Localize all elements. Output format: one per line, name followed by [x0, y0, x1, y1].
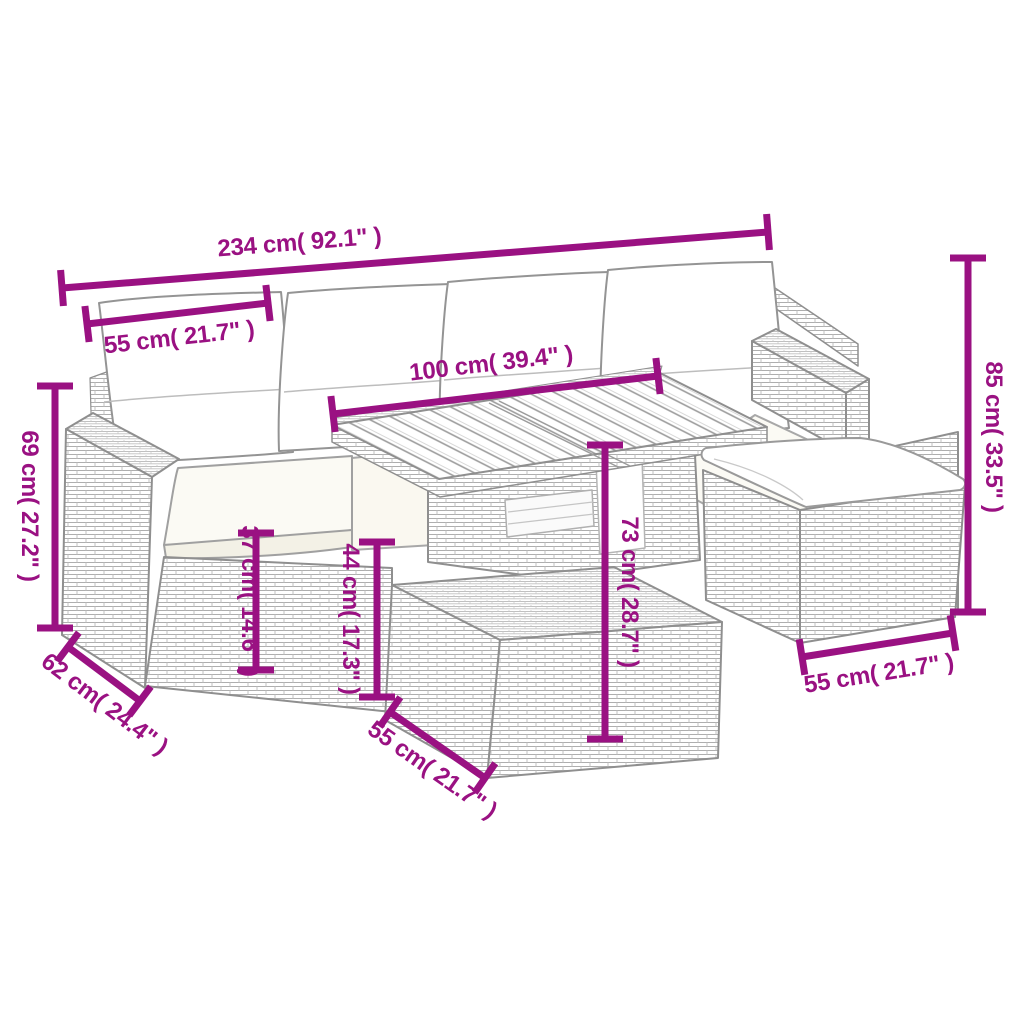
dimension-label-table-height: 73 cm( 28.7" ) — [616, 516, 643, 667]
right-ottoman-front-face — [800, 485, 965, 643]
dimension-label-total-height: 85 cm( 33.5" ) — [980, 361, 1007, 512]
dimension-label-arm-height: 69 cm( 27.2" ) — [16, 430, 43, 581]
dimension-label-seat-height: 37 cm( 14.6" ) — [236, 525, 263, 676]
dimension-label-overall-width: 234 cm( 92.1" ) — [216, 223, 382, 263]
dimension-label-ottoman-height: 44 cm( 17.3" ) — [337, 543, 364, 694]
diagram-canvas: 234 cm( 92.1" ) 55 cm( 21.7" ) 100 cm( 3… — [0, 0, 1024, 1024]
right-ottoman — [702, 438, 966, 643]
dimension-diagram: 234 cm( 92.1" ) 55 cm( 21.7" ) 100 cm( 3… — [0, 0, 1024, 1024]
